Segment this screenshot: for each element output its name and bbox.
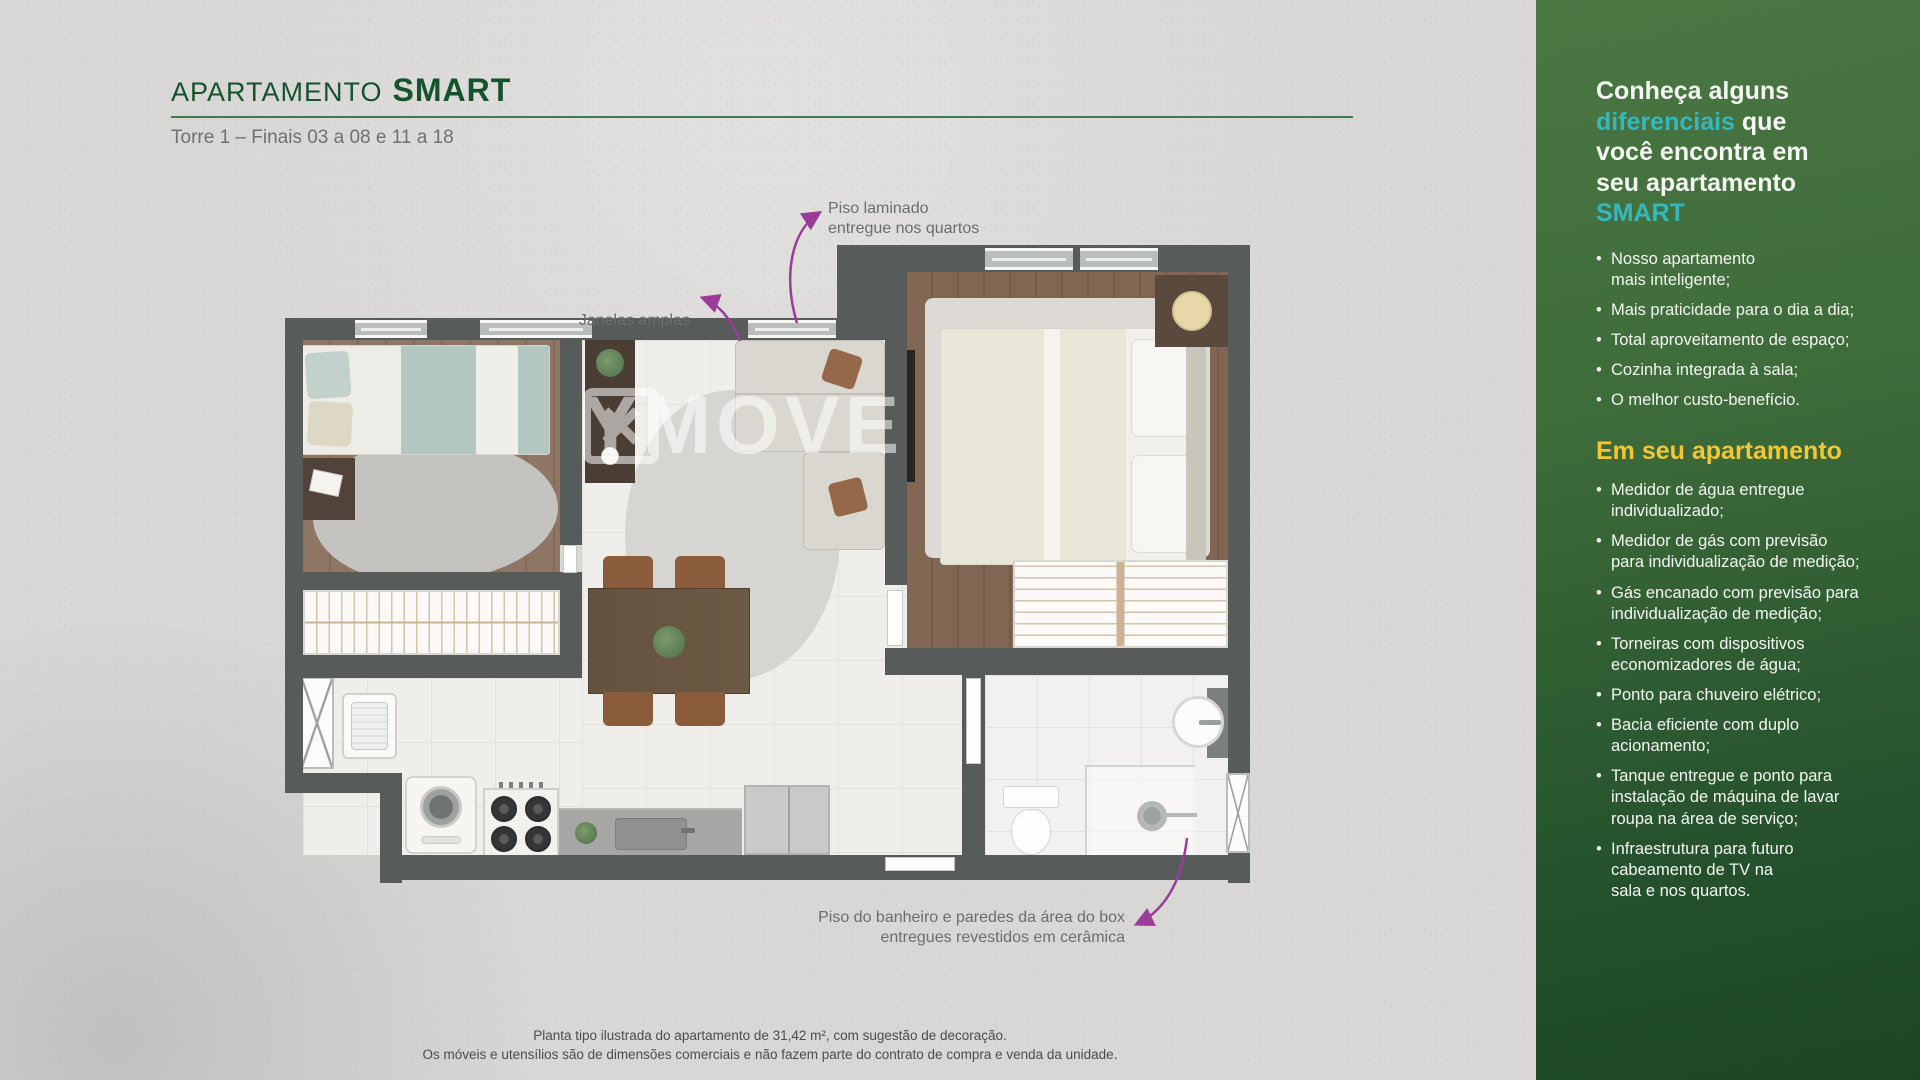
wall xyxy=(285,318,303,793)
bedroom2-bed xyxy=(940,328,1205,565)
list-item: Total aproveitamento de espaço; xyxy=(1596,330,1906,351)
pillow xyxy=(1131,455,1193,553)
duvet xyxy=(941,329,1126,564)
wall xyxy=(380,773,402,883)
disclaimer-line1: Planta tipo ilustrada do apartamento de … xyxy=(285,1027,1255,1046)
title-prefix: APARTAMENTO xyxy=(171,77,383,108)
sideboard-decor xyxy=(601,447,619,465)
list-item: Gás encanado com previsão para individua… xyxy=(1596,583,1906,625)
headboard xyxy=(1186,329,1206,564)
bedroom1-bed xyxy=(300,345,550,455)
list-item: Torneiras com dispositivos economizadore… xyxy=(1596,634,1906,676)
windows-annotation: Janelas amplas xyxy=(470,311,690,331)
list-item-text: O melhor custo-benefício. xyxy=(1611,391,1800,409)
shower-head xyxy=(1137,801,1167,831)
heading-text: Conheça alguns xyxy=(1596,77,1789,105)
dining-chair xyxy=(603,692,653,726)
burner xyxy=(525,826,551,852)
toilet-bowl xyxy=(1011,809,1051,855)
list-item: O melhor custo-benefício. xyxy=(1596,390,1906,411)
bedroom1-wardrobe xyxy=(303,590,560,655)
wall xyxy=(560,572,582,678)
sidebar-heading: Conheça alguns diferenciais que você enc… xyxy=(1596,76,1906,229)
dining-chair xyxy=(603,556,653,590)
list-item: Infraestrutura para futuro cabeamento de… xyxy=(1596,839,1906,902)
wall xyxy=(885,272,907,585)
pillow xyxy=(1131,339,1193,437)
sideboard xyxy=(585,335,635,483)
stool xyxy=(1172,291,1212,331)
intro-bullet-list: Nosso apartamento mais inteligente;Mais … xyxy=(1596,249,1906,412)
bedroom1-door xyxy=(563,545,577,573)
duvet-fold xyxy=(1044,329,1060,564)
bath-sink xyxy=(1172,696,1224,748)
bathroom-window xyxy=(1226,773,1250,853)
tower-subtitle: Torre 1 – Finais 03 a 08 e 11 a 18 xyxy=(171,127,454,149)
list-item-text: Medidor de água entregue individualizado… xyxy=(1611,481,1805,520)
bath-faucet xyxy=(1199,720,1221,725)
bed-blanket xyxy=(401,346,549,454)
list-item: Mais praticidade para o dia a dia; xyxy=(1596,300,1906,321)
page-title: APARTAMENTO SMART xyxy=(171,72,511,109)
dining-chair xyxy=(675,692,725,726)
book xyxy=(309,469,343,497)
list-item: Cozinha integrada à sala; xyxy=(1596,360,1906,381)
list-item-text: Medidor de gás com previsão para individ… xyxy=(1611,532,1860,571)
stove xyxy=(483,788,559,858)
table-plant xyxy=(653,626,685,658)
disclaimer-line2: Os móveis e utensílios são de dimensões … xyxy=(285,1046,1255,1065)
washing-machine xyxy=(405,776,477,854)
sofa-main xyxy=(735,340,885,452)
wall xyxy=(560,318,582,545)
window xyxy=(355,320,427,338)
service-door xyxy=(300,677,334,769)
kitchen-sink xyxy=(615,818,687,850)
heading-highlight: SMART xyxy=(1596,199,1685,227)
wall xyxy=(885,648,1228,675)
list-item: Tanque entregue e ponto para instalação … xyxy=(1596,766,1906,829)
bedroom2-door xyxy=(887,590,903,646)
list-item: Medidor de gás com previsão para individ… xyxy=(1596,531,1906,573)
fridge-handle xyxy=(788,787,790,853)
bedroom1-desk xyxy=(303,458,355,520)
burner xyxy=(491,796,517,822)
toilet xyxy=(1003,786,1059,858)
bedroom2-wardrobe xyxy=(1013,560,1228,648)
list-item-text: Gás encanado com previsão para individua… xyxy=(1611,584,1859,623)
features-sidebar: Conheça alguns diferenciais que você enc… xyxy=(1536,0,1920,1080)
kitchen-counter xyxy=(559,808,742,855)
wall xyxy=(285,572,582,590)
list-item-text: Infraestrutura para futuro cabeamento de… xyxy=(1611,840,1794,900)
list-item-text: Cozinha integrada à sala; xyxy=(1611,361,1798,379)
washer-controls xyxy=(421,836,461,844)
bedroom2-corner-table xyxy=(1155,275,1228,347)
list-item-text: Bacia eficiente com duplo acionamento; xyxy=(1611,716,1799,755)
burner xyxy=(525,796,551,822)
dining-table xyxy=(588,588,750,694)
entry-door xyxy=(885,857,955,871)
window xyxy=(985,248,1073,270)
list-item: Ponto para chuveiro elétrico; xyxy=(1596,685,1906,706)
heading-highlight: diferenciais xyxy=(1596,108,1735,136)
laminate-annotation: Piso laminado entregue nos quartos xyxy=(828,199,1058,240)
bathroom-annotation: Piso do banheiro e paredes da área do bo… xyxy=(755,908,1125,949)
wall xyxy=(285,655,582,678)
list-item-text: Total aproveitamento de espaço; xyxy=(1611,331,1850,349)
list-item: Bacia eficiente com duplo acionamento; xyxy=(1596,715,1906,757)
list-item-text: Mais praticidade para o dia a dia; xyxy=(1611,301,1854,319)
feature-bullet-list: Medidor de água entregue individualizado… xyxy=(1596,480,1906,902)
list-item: Nosso apartamento mais inteligente; xyxy=(1596,249,1906,291)
pillow xyxy=(304,351,351,400)
dining-chair xyxy=(675,556,725,590)
list-item-text: Torneiras com dispositivos economizadore… xyxy=(1611,635,1805,674)
laundry-tank xyxy=(342,693,397,759)
fridge xyxy=(744,785,830,855)
sideboard-plant xyxy=(596,349,624,377)
sofa-seat-line xyxy=(736,393,886,395)
shower-box xyxy=(1085,765,1195,855)
title-divider xyxy=(171,116,1353,118)
wall xyxy=(400,855,1250,880)
tv-panel-bedroom2 xyxy=(907,350,915,482)
pillow xyxy=(307,401,353,447)
list-item-text: Nosso apartamento mais inteligente; xyxy=(1611,250,1755,289)
kitchen-faucet xyxy=(681,828,695,833)
tank-basin xyxy=(351,702,388,750)
washer-door xyxy=(420,786,462,828)
list-item-text: Ponto para chuveiro elétrico; xyxy=(1611,686,1821,704)
title-name: SMART xyxy=(393,72,512,109)
toilet-tank xyxy=(1003,786,1059,808)
disclaimer: Planta tipo ilustrada do apartamento de … xyxy=(285,1027,1255,1065)
list-item-text: Tanque entregue e ponto para instalação … xyxy=(1611,767,1839,827)
window xyxy=(1080,248,1158,270)
burner xyxy=(491,826,517,852)
window xyxy=(748,320,836,338)
stove-knobs xyxy=(499,782,543,788)
counter-plant xyxy=(575,822,597,844)
list-item: Medidor de água entregue individualizado… xyxy=(1596,480,1906,522)
floor-plan: YMOVE xyxy=(285,240,1250,900)
bathroom-door xyxy=(966,678,981,764)
sidebar-section-title: Em seu apartamento xyxy=(1596,437,1906,466)
bed-sheet-fold xyxy=(476,346,518,454)
